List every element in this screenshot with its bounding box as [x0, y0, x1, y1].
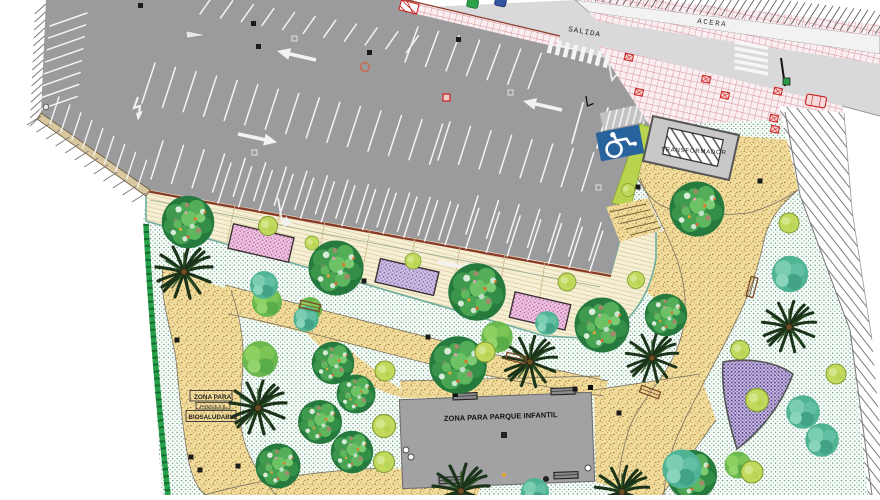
svg-text:ZONA PARA: ZONA PARA [194, 394, 232, 401]
svg-text:PARQUE S.B.: PARQUE S.B. [200, 404, 226, 409]
svg-text:BIOSALUDABLE: BIOSALUDABLE [189, 414, 238, 421]
